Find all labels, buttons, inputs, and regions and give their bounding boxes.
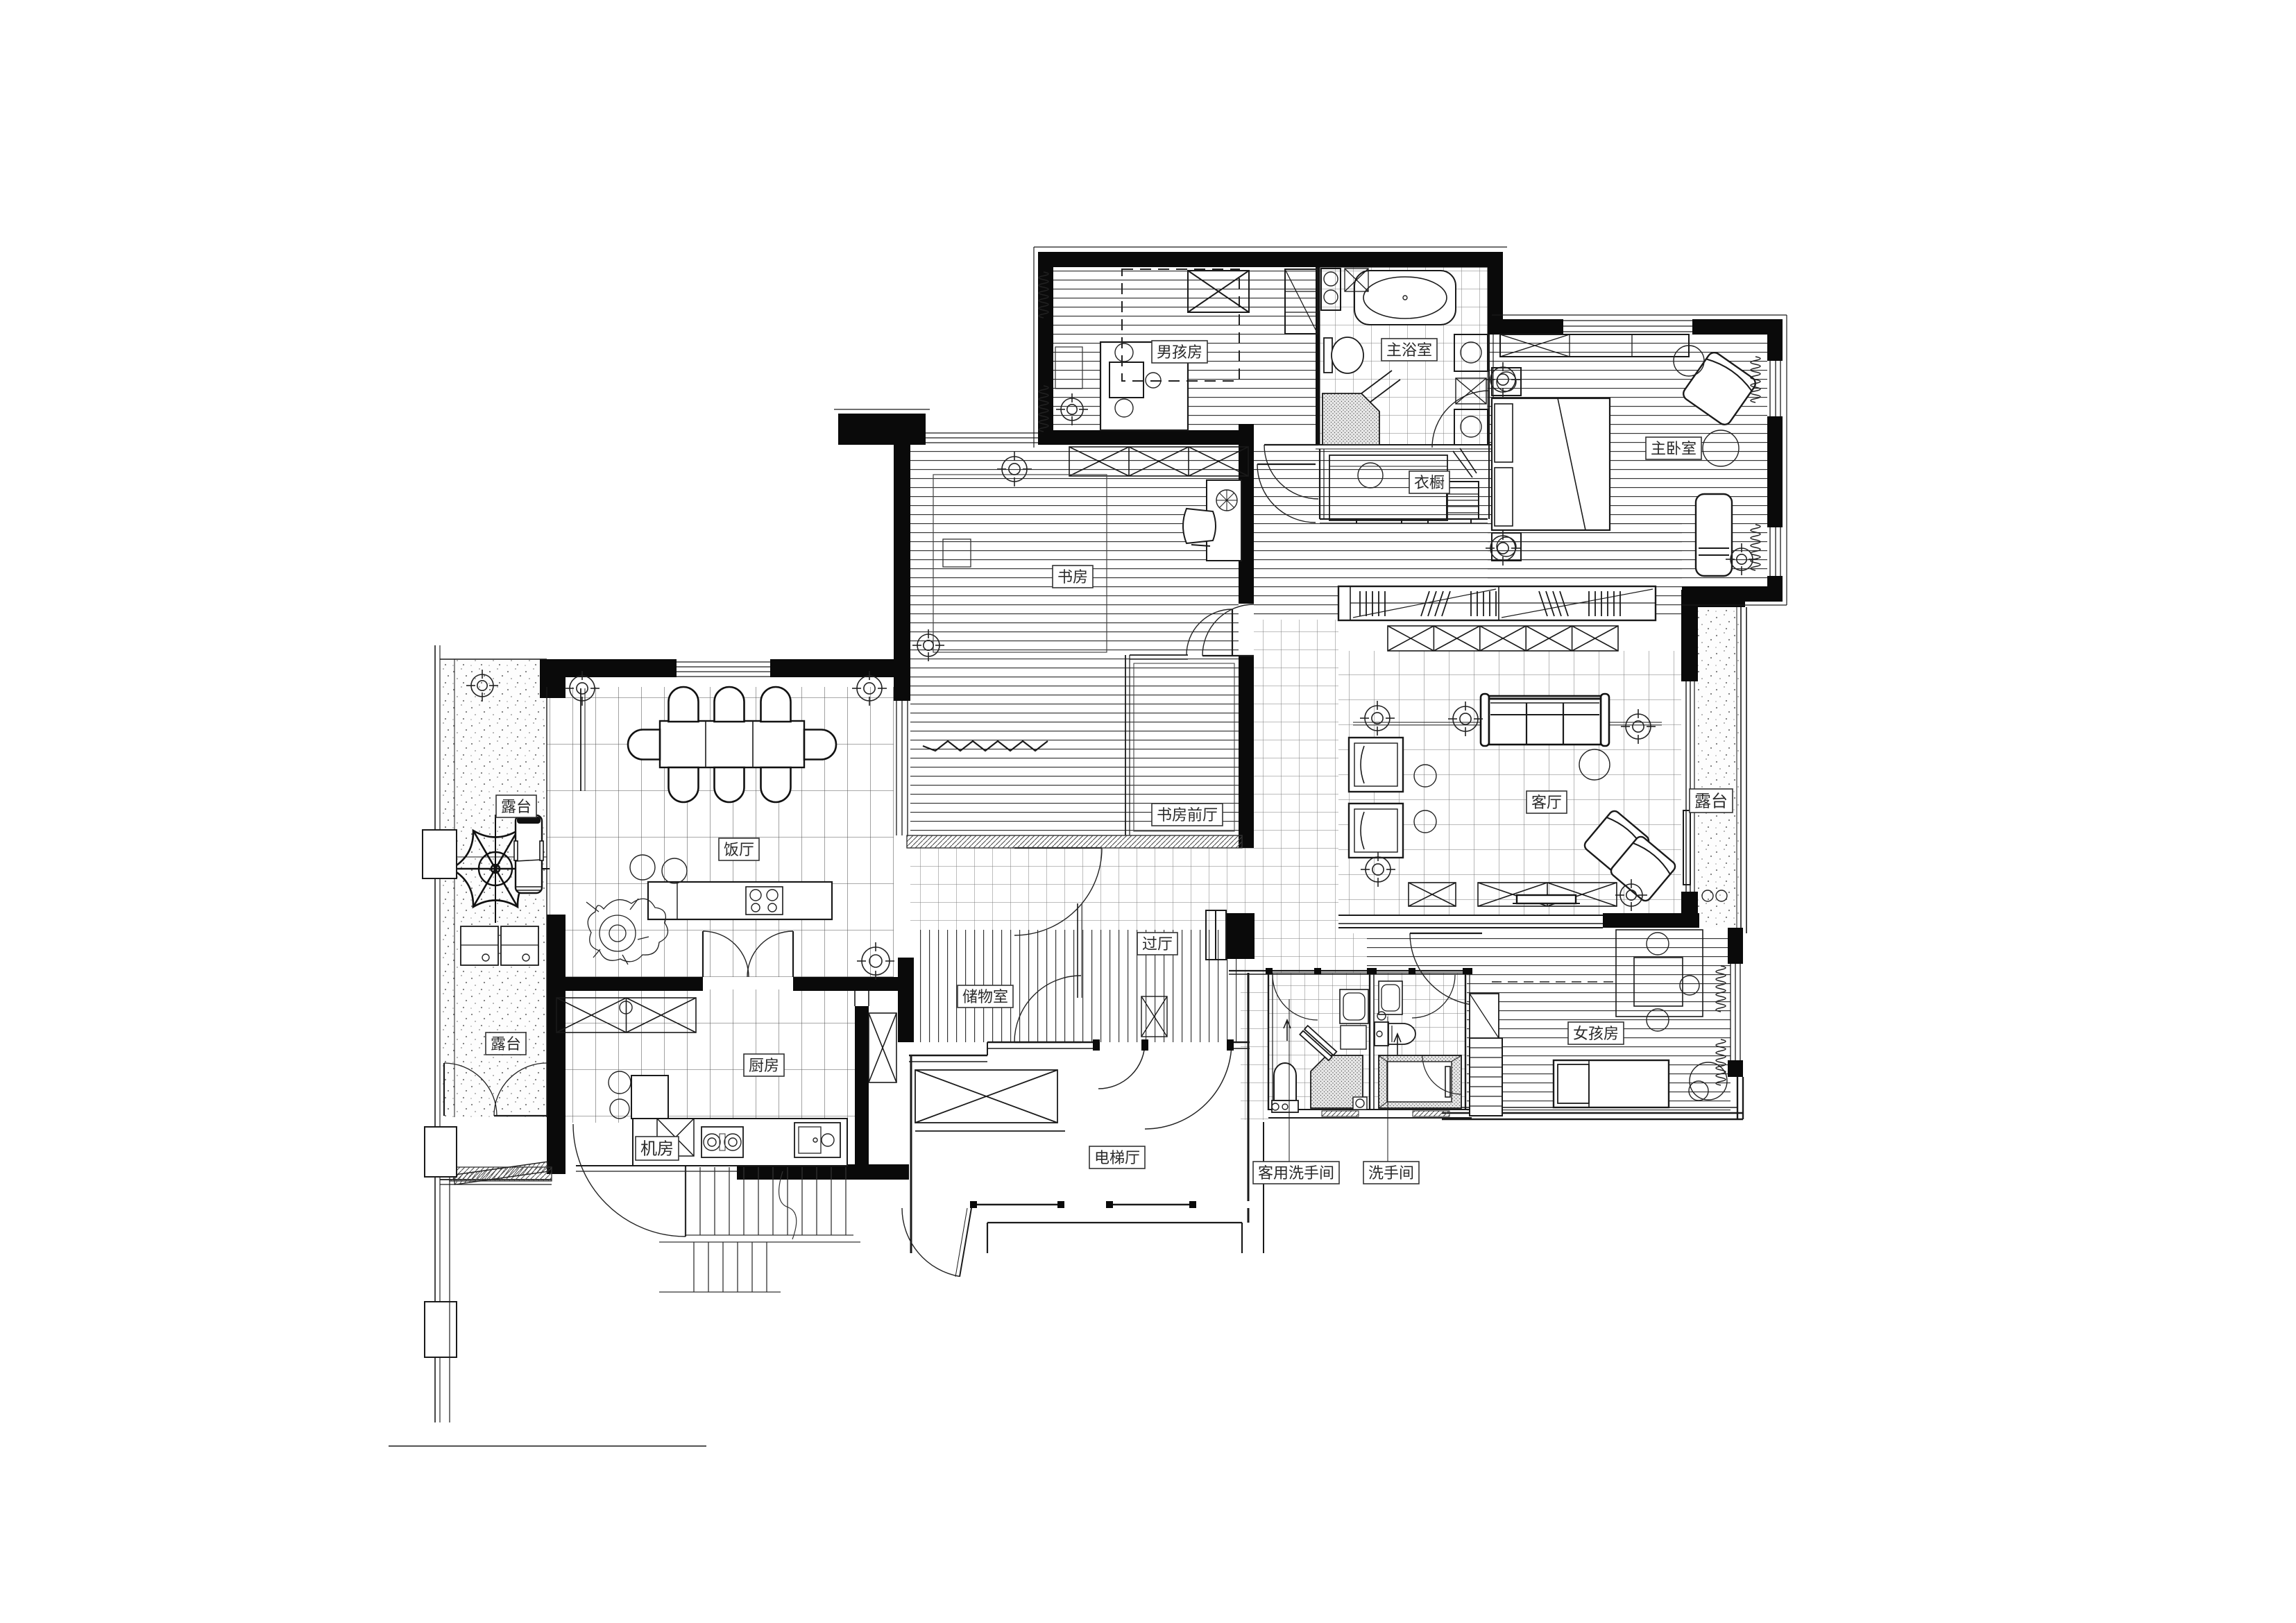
- svg-text:露台: 露台: [1694, 792, 1728, 811]
- svg-text:女孩房: 女孩房: [1573, 1025, 1619, 1042]
- svg-text:主浴室: 主浴室: [1386, 341, 1432, 359]
- svg-text:客厅: 客厅: [1531, 794, 1562, 811]
- svg-text:书房前厅: 书房前厅: [1157, 806, 1218, 824]
- svg-text:饭厅: 饭厅: [724, 841, 754, 858]
- svg-text:主卧室: 主卧室: [1651, 440, 1697, 457]
- svg-text:厨房: 厨房: [749, 1057, 779, 1074]
- svg-text:洗手间: 洗手间: [1368, 1164, 1414, 1182]
- svg-text:露台: 露台: [491, 1035, 521, 1053]
- svg-text:储物室: 储物室: [962, 988, 1008, 1005]
- svg-text:过厅: 过厅: [1142, 935, 1173, 953]
- svg-text:机房: 机房: [640, 1140, 674, 1159]
- svg-text:电梯厅: 电梯厅: [1094, 1149, 1140, 1166]
- svg-text:男孩房: 男孩房: [1157, 343, 1202, 361]
- svg-text:露台: 露台: [501, 798, 532, 815]
- svg-text:衣橱: 衣橱: [1414, 474, 1445, 491]
- svg-text:客用洗手间: 客用洗手间: [1258, 1164, 1334, 1182]
- svg-text:书房: 书房: [1057, 568, 1088, 586]
